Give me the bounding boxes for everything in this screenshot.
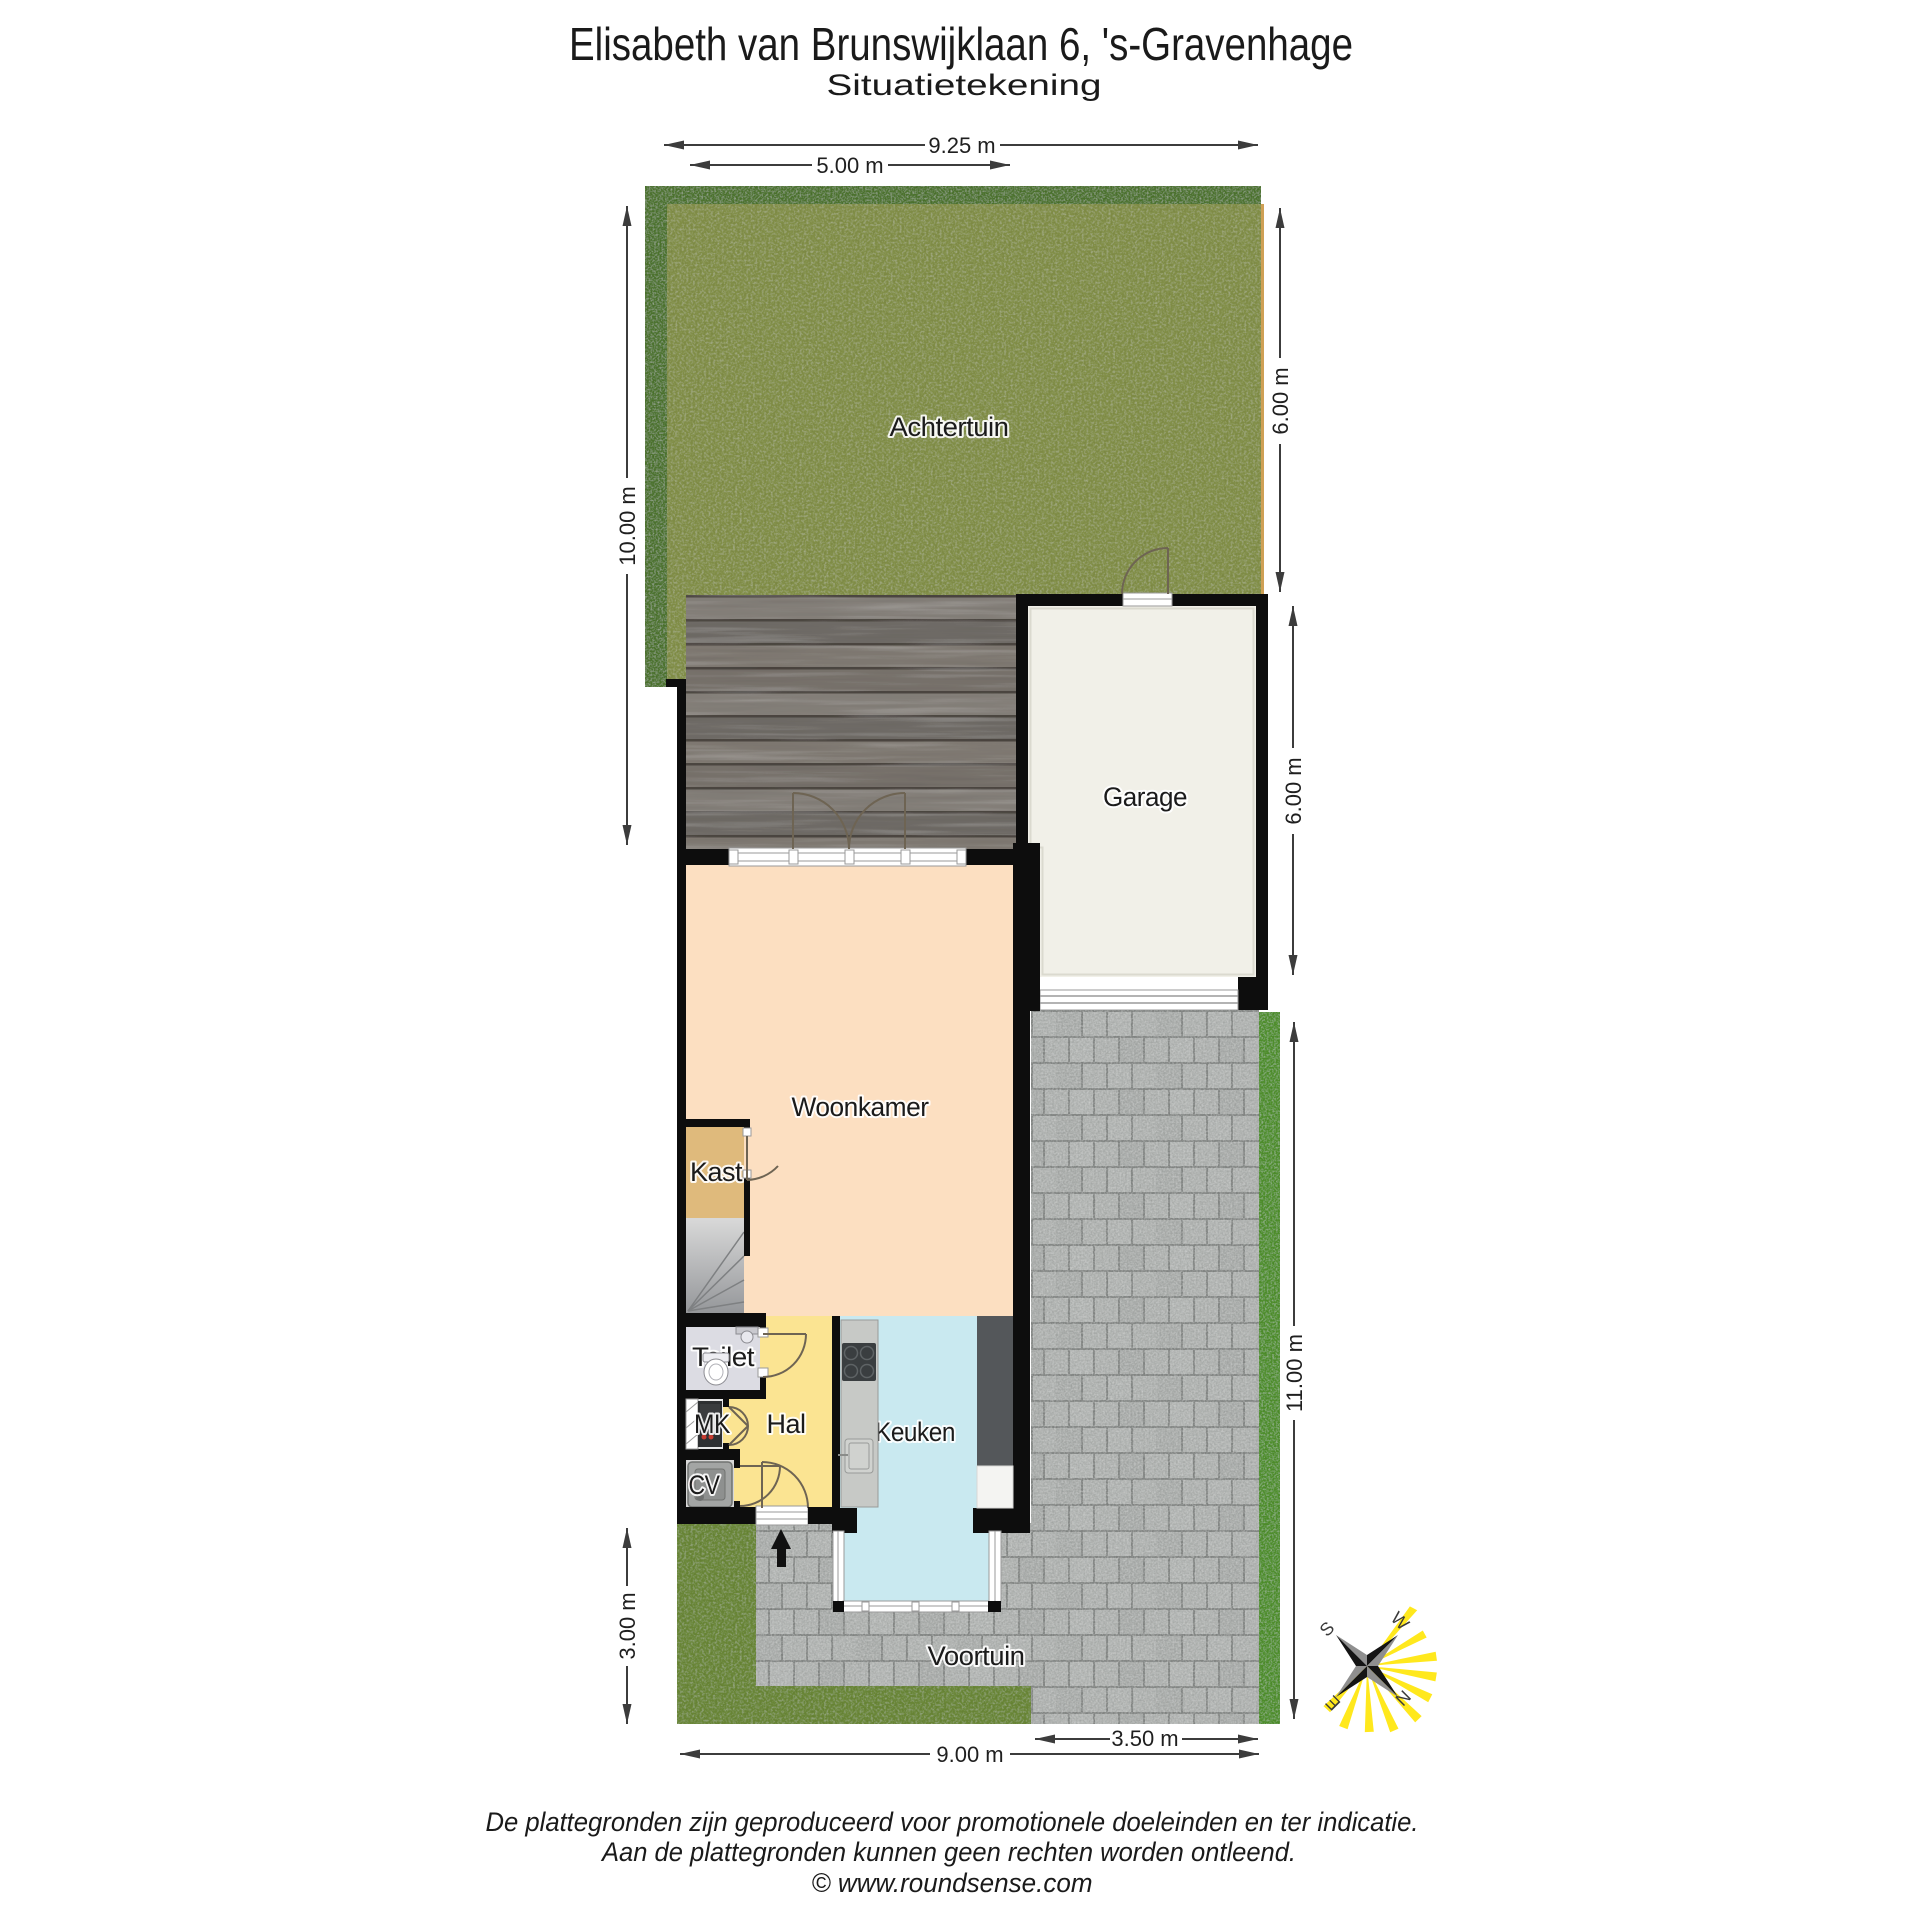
svg-text:11.00 m: 11.00 m — [1282, 1334, 1307, 1412]
svg-text:9.25 m: 9.25 m — [928, 133, 995, 158]
svg-text:MK: MK — [694, 1409, 730, 1439]
svg-text:6.00 m: 6.00 m — [1268, 367, 1293, 434]
svg-text:Situatietekening: Situatietekening — [827, 69, 1102, 102]
svg-text:Keuken: Keuken — [875, 1417, 955, 1447]
svg-text:5.00 m: 5.00 m — [816, 153, 883, 178]
svg-text:Hal: Hal — [767, 1409, 806, 1439]
svg-text:Woonkamer: Woonkamer — [792, 1092, 929, 1122]
svg-text:Voortuin: Voortuin — [928, 1641, 1025, 1671]
svg-text:Kast: Kast — [690, 1157, 743, 1187]
svg-text:Garage: Garage — [1103, 782, 1187, 812]
svg-text:Elisabeth van Brunswijklaan 6,: Elisabeth van Brunswijklaan 6, 's-Graven… — [569, 18, 1353, 70]
svg-text:10.00 m: 10.00 m — [615, 486, 640, 566]
svg-text:3.50 m: 3.50 m — [1111, 1726, 1178, 1751]
svg-text:Aan de plattegronden kunnen ge: Aan de plattegronden kunnen geen rechten… — [600, 1837, 1296, 1867]
svg-text:De plattegronden zijn geproduc: De plattegronden zijn geproduceerd voor … — [486, 1807, 1419, 1837]
svg-text:© www.roundsense.com: © www.roundsense.com — [812, 1868, 1093, 1898]
svg-text:Achtertuin: Achtertuin — [890, 412, 1009, 442]
svg-text:CV: CV — [689, 1470, 720, 1500]
svg-text:6.00 m: 6.00 m — [1281, 757, 1306, 824]
svg-text:9.00 m: 9.00 m — [936, 1742, 1003, 1767]
svg-text:3.00 m: 3.00 m — [615, 1592, 640, 1659]
